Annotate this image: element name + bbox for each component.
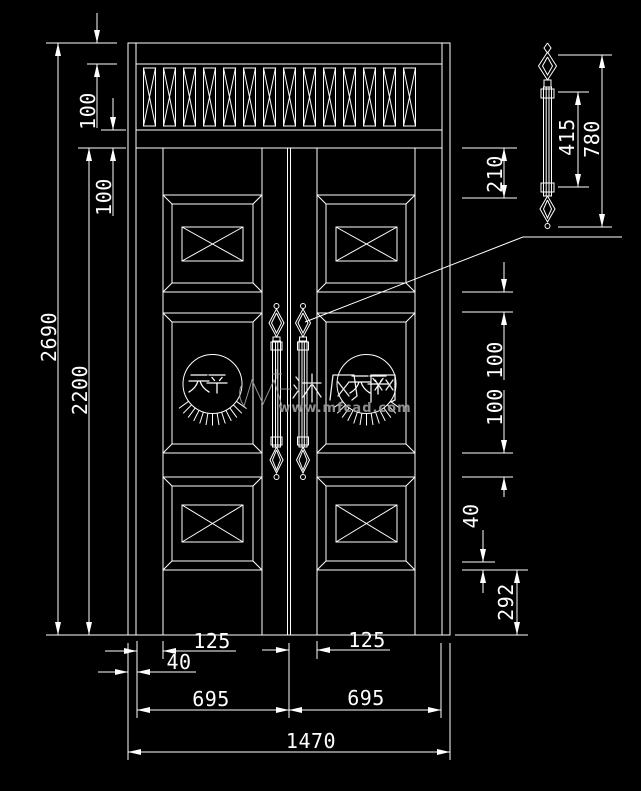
dim-rail-mid-bottom: 100: [462, 388, 513, 497]
svg-text:40: 40: [459, 503, 483, 528]
svg-text:415: 415: [555, 118, 579, 156]
svg-text:100: 100: [76, 92, 100, 130]
svg-text:695: 695: [347, 686, 385, 710]
svg-text:2200: 2200: [68, 365, 92, 415]
svg-text:40: 40: [166, 650, 191, 674]
svg-text:2690: 2690: [37, 312, 61, 362]
handle-detail: [539, 43, 557, 229]
dim-handle-offset: 210: [462, 148, 517, 198]
svg-text:1470: 1470: [286, 729, 336, 753]
dim-stile-right: 125: [262, 628, 390, 653]
cad-viewport: 2690 2200 100 100 210: [0, 0, 641, 791]
svg-text:780: 780: [580, 120, 604, 158]
svg-text:695: 695: [192, 687, 230, 711]
dim-total-width: 1470: [128, 729, 450, 755]
dim-bottom-rail: 292: [455, 570, 528, 635]
svg-text:100: 100: [92, 178, 116, 216]
door-frame: [46, 43, 450, 635]
svg-text:292: 292: [494, 583, 518, 621]
svg-text:125: 125: [193, 629, 231, 653]
handle-leader-line: [305, 237, 622, 322]
svg-text:125: 125: [348, 628, 386, 652]
svg-text:100: 100: [483, 388, 507, 426]
dim-top-rail: 100: [76, 13, 117, 130]
watermark-url: www.mfcad.com: [278, 401, 411, 416]
dim-frame-edge: 40: [98, 650, 196, 675]
tianping-glyph-left: [189, 375, 227, 393]
svg-text:100: 100: [483, 341, 507, 379]
dim-leaf-width-right: 695: [289, 686, 441, 713]
watermark-brand-glyphs: [293, 374, 395, 402]
dim-rail-top-mid: 100: [462, 262, 513, 380]
door-handle-left: [269, 304, 284, 480]
dimensions: 2690 2200 100 100 210: [37, 13, 612, 760]
dim-leaf-height: 2200: [68, 148, 126, 635]
louver-slat: [144, 68, 156, 126]
door-leaves: [163, 148, 415, 635]
svg-text:210: 210: [483, 155, 507, 193]
transom-louvers: [144, 68, 416, 126]
dim-total-height: 2690: [37, 43, 117, 635]
medallion-circle-left: [183, 355, 242, 414]
dim-leaf-width-left: 695: [137, 687, 289, 713]
cad-drawing: 2690 2200 100 100 210: [0, 0, 641, 791]
